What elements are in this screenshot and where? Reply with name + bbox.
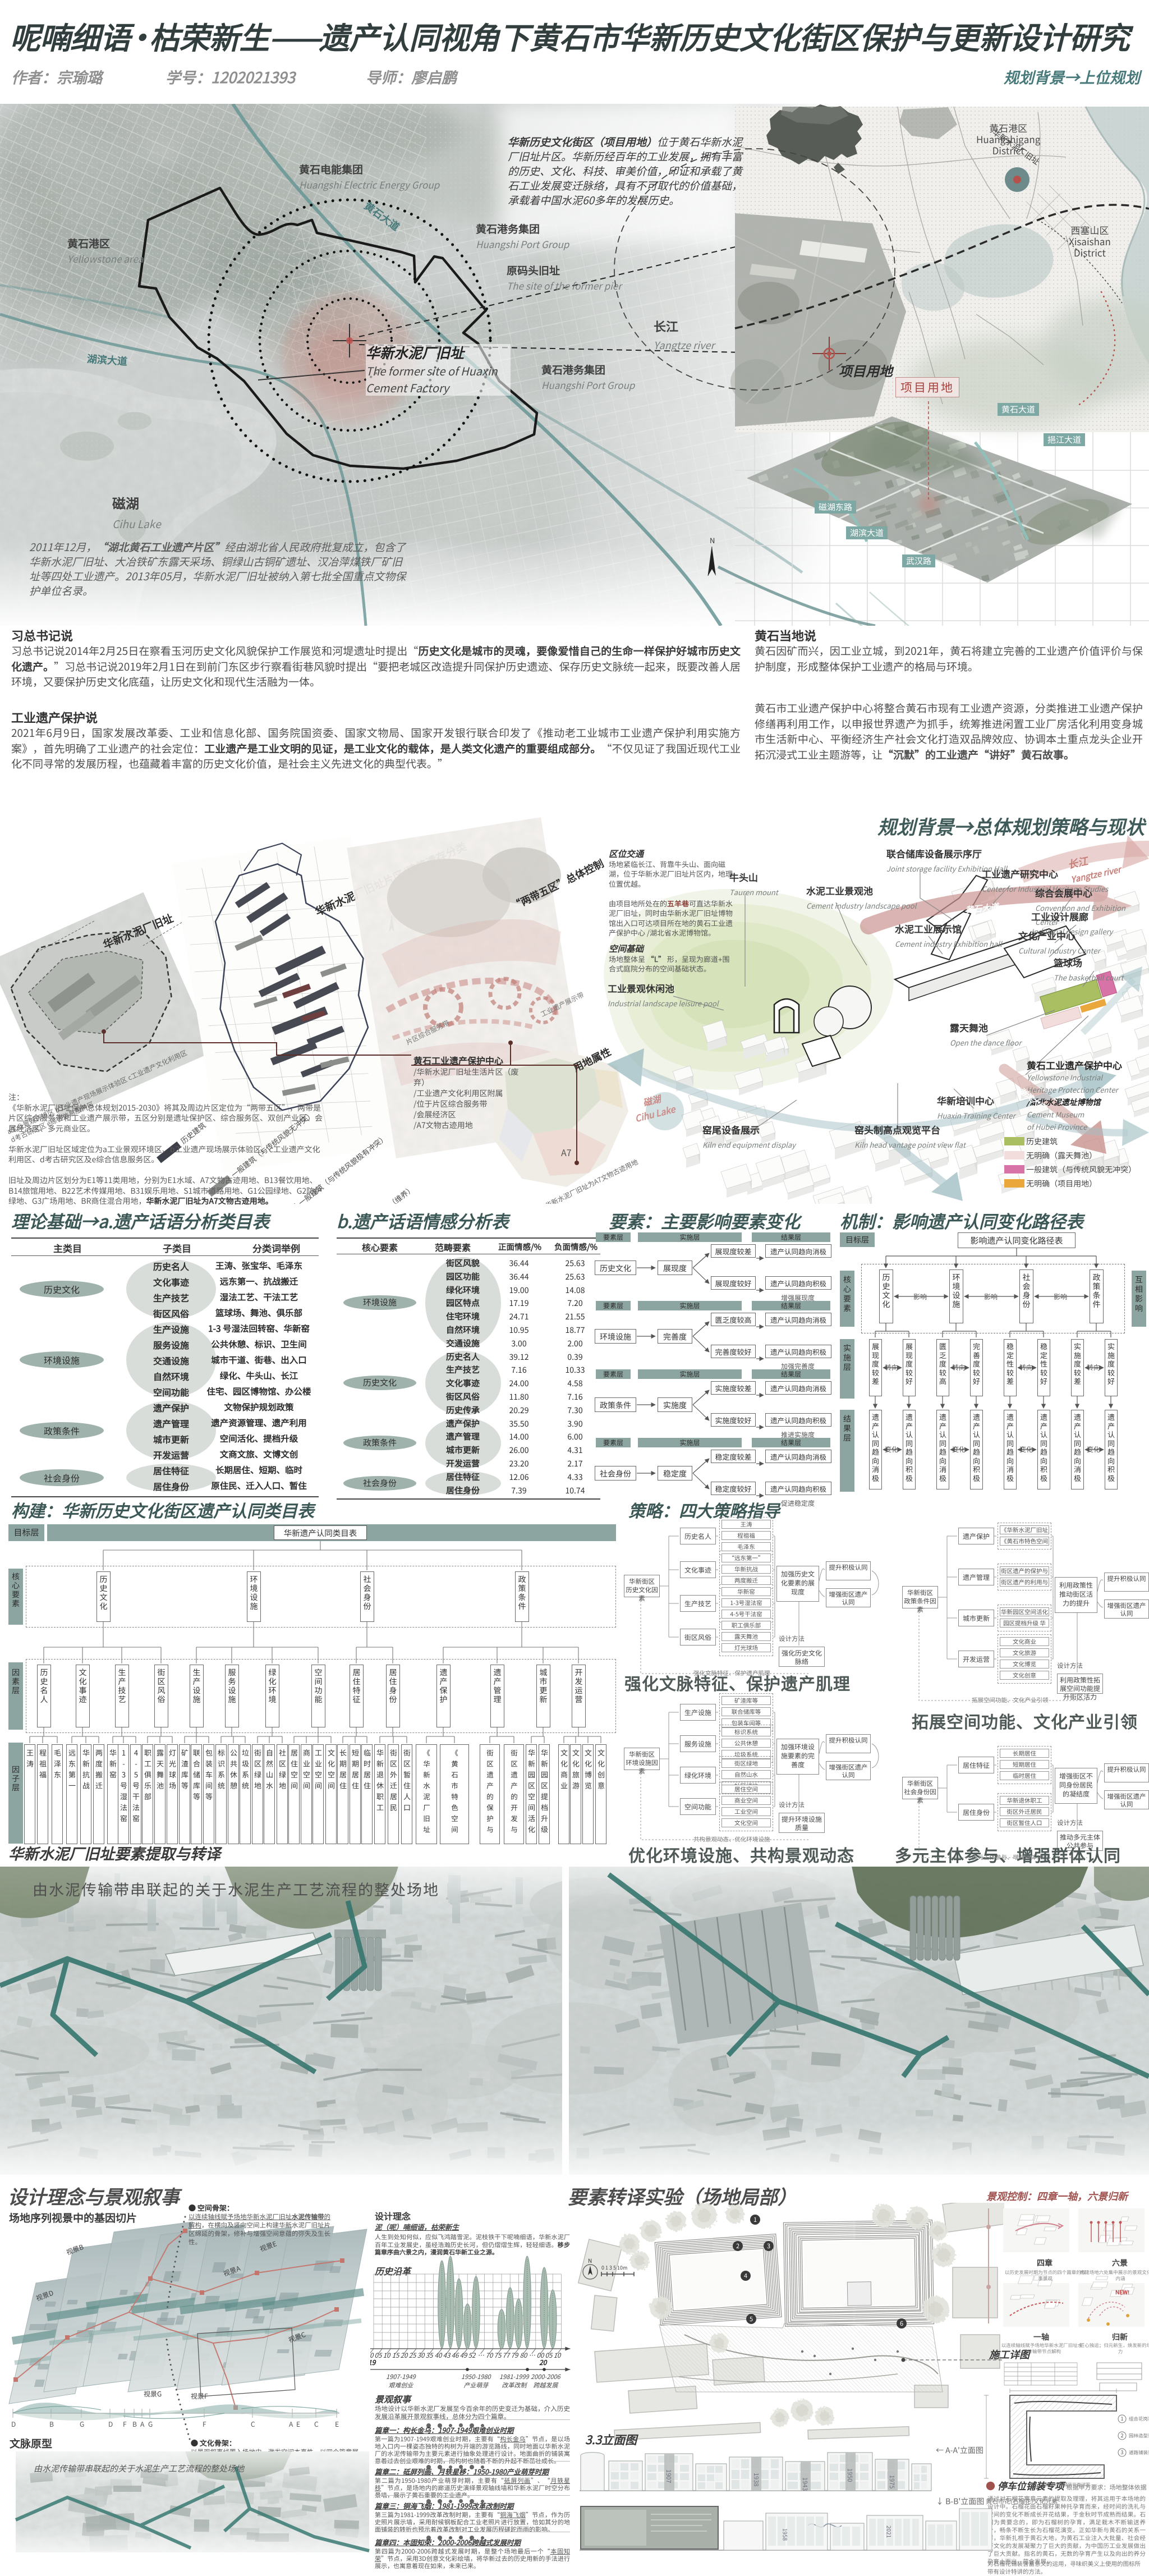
svg-text:30: 30 [417,2351,425,2360]
svg-text:1950: 1950 [845,2468,854,2482]
svg-text:A: A [140,2419,145,2429]
svg-text:C: C [251,2419,255,2429]
svg-text:3: 3 [1121,2449,1124,2456]
svg-text:15: 15 [392,2351,400,2360]
svg-text:75: 75 [494,2351,502,2360]
svg-text:E: E [296,2419,300,2429]
svg-text:43: 43 [443,2351,451,2360]
svg-text:组合花岗岩: 组合花岗岩 [1129,2415,1149,2422]
svg-text:2: 2 [736,2242,739,2250]
svg-text:D: D [11,2419,16,2429]
svg-text:…: … [477,2351,484,2360]
svg-text:77: 77 [503,2351,511,2360]
svg-text:F: F [203,2419,206,2429]
svg-text:10: 10 [383,2351,391,2360]
svg-text:1975: 1975 [888,2475,897,2488]
svg-text:NEW!: NEW! [1115,2288,1129,2296]
svg-text:46: 46 [452,2351,459,2360]
svg-text:80: 80 [520,2351,528,2360]
svg-text:1: 1 [753,2215,757,2224]
svg-text:1: 1 [1121,2415,1124,2422]
svg-text:E: E [335,2419,339,2429]
svg-text:文物建筑（维养）: 文物建筑（维养） [364,1183,416,1204]
svg-text:G: G [148,2419,153,2429]
svg-text:05: 05 [375,2351,383,2360]
svg-text:B: B [49,2419,54,2429]
svg-text:52: 52 [468,2351,476,2360]
svg-text:A: A [289,2419,293,2429]
svg-text:1958: 1958 [782,2528,790,2541]
svg-text:道路铺装详图: 道路铺装详图 [1129,2449,1149,2456]
svg-text:1943: 1943 [801,2477,810,2491]
svg-text:40: 40 [435,2351,443,2360]
svg-text:35: 35 [426,2351,434,2360]
svg-text:N: N [710,535,715,546]
svg-text:10: 10 [554,2351,562,2360]
svg-text:6: 6 [900,2319,903,2328]
svg-text:70: 70 [486,2351,494,2360]
svg-text:3: 3 [767,2242,770,2250]
svg-text:D: D [108,2419,113,2429]
svg-text:20: 20 [401,2351,408,2360]
svg-text:1938: 1938 [752,2473,761,2486]
svg-text:G: G [80,2419,84,2429]
svg-text:25: 25 [409,2351,417,2360]
svg-text:…: … [528,2351,535,2360]
svg-text:N: N [588,2256,592,2265]
svg-text:F: F [123,2419,127,2429]
svg-text:A7: A7 [561,1145,572,1159]
svg-text:2021: 2021 [885,2525,894,2538]
svg-text:49: 49 [460,2351,468,2360]
svg-text:79: 79 [511,2351,519,2360]
svg-text:0 1 3 5 10m: 0 1 3 5 10m [601,2264,627,2271]
svg-text:B: B [132,2419,137,2429]
svg-text:1907: 1907 [664,2469,673,2483]
svg-text:C: C [314,2419,319,2429]
svg-text:19: 19 [370,2358,376,2367]
svg-text:4: 4 [744,2271,747,2280]
svg-text:5: 5 [750,2314,753,2323]
svg-text:园林造型详图: 园林造型详图 [1129,2432,1149,2439]
svg-text:2: 2 [1121,2432,1124,2439]
svg-text:20: 20 [539,2358,548,2367]
